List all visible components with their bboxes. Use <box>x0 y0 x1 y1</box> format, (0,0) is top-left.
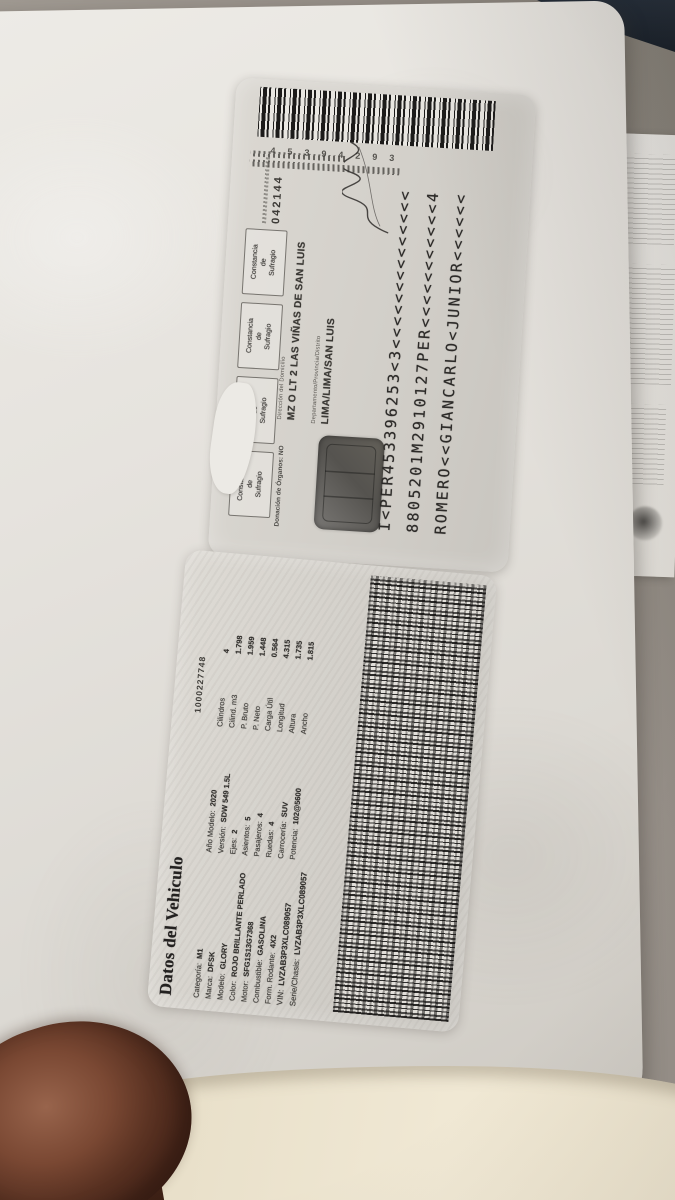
chip-icon <box>313 435 385 533</box>
constancia-label: Constancia de Sufragio <box>250 244 278 281</box>
vehicle-card-inner: Datos del Vehiculo 1000227748 Categoría:… <box>147 549 498 1032</box>
camera-photo: Constancia de Sufragio Constancia de Suf… <box>0 0 675 1200</box>
vehicle-card: Datos del Vehiculo 1000227748 Categoría:… <box>147 549 498 1032</box>
field-ruedas: Ruedas:4 <box>264 821 276 858</box>
field-asientos: Asientos:5 <box>240 816 252 856</box>
field-serie-chasis: Serie/Chasis:LVZAB3P3XLC089057 <box>288 872 309 1007</box>
dni-card: Constancia de Sufragio Constancia de Suf… <box>208 77 537 572</box>
constancia-box: Constancia de Sufragio <box>242 228 288 296</box>
field-marca: Marca:DFSK <box>203 951 216 999</box>
votacion-number: 042144 <box>270 175 285 224</box>
organ-donation-text: Donación de Órganos: NO <box>274 445 286 527</box>
doc-number: 1000227748 <box>192 655 207 713</box>
dni-card-inner: Constancia de Sufragio Constancia de Suf… <box>208 77 537 572</box>
field-ejes: Ejes:2 <box>228 829 239 855</box>
field-potencia: Potencia:102@5600 <box>288 788 303 860</box>
field-categoria: Categoría:M1 <box>192 948 205 998</box>
constancia-label: Constancia de Sufragio <box>246 318 274 355</box>
field-pasajeros: Pasajeros:4 <box>252 813 265 857</box>
ubigeo-text: LIMA/LIMA/SAN LUIS <box>320 318 337 425</box>
vehicle-card-title: Datos del Vehiculo <box>156 855 188 996</box>
pdf417-barcode <box>333 575 487 1021</box>
constancia-box: Constancia de Sufragio <box>237 302 283 370</box>
address-text: MZ O LT 2 LAS VIÑAS DE SAN LUIS <box>286 241 308 420</box>
